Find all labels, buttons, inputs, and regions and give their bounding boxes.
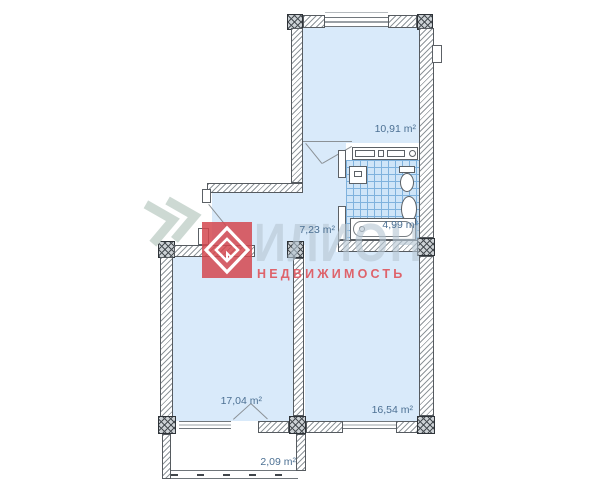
- washing-machine-door: [354, 171, 362, 177]
- window-lower-left: [179, 421, 231, 429]
- washing-machine: [349, 166, 367, 184]
- bathroom-wall-left-upper: [338, 150, 346, 178]
- wall-hallway-upper: [207, 183, 303, 193]
- balcony-glazing: [171, 470, 298, 479]
- wall-lower-right-outer: [419, 256, 434, 416]
- balcony-wall-right: [296, 434, 306, 471]
- window-lower-right: [343, 421, 396, 429]
- wall-top-seg2: [388, 15, 417, 28]
- vanity-unit-1: [355, 150, 375, 157]
- wall-bottom-right-seg2: [396, 421, 418, 433]
- balcony-area-label: 2,09 m²: [200, 456, 296, 468]
- wall-top-seg1: [303, 15, 325, 28]
- toilet-tank: [399, 166, 415, 173]
- corner-block-bottom-far-left: [158, 416, 176, 434]
- wall-bottom-left-seg: [258, 421, 289, 433]
- wall-room-divider: [293, 258, 304, 416]
- vanity-unit-2: [378, 150, 384, 157]
- window-sill-line-top: [325, 12, 388, 13]
- floor-plan-canvas: ИЛИОН НЕДВИЖИМОСТЬ 10,91 m² 7,23 m² 4,99…: [0, 0, 600, 500]
- room-lower-left-area-label: 17,04 m²: [167, 395, 262, 407]
- wall-bottom-right-seg1: [306, 421, 343, 433]
- entrance-jamb-upper: [202, 189, 211, 203]
- toilet-bowl: [400, 173, 414, 192]
- corner-block-bottom-far-right: [417, 416, 435, 434]
- vanity-unit-3: [387, 150, 405, 157]
- room-top-area-label: 10,91 m²: [316, 123, 416, 135]
- balcony-glazing-mullions: [171, 474, 298, 476]
- room-lower-right-area-label: 16,54 m²: [318, 404, 413, 416]
- vent-shaft: [432, 45, 442, 63]
- top-room-door-head: [303, 141, 352, 142]
- bathroom-vanity-counter: [352, 147, 418, 160]
- wall-lower-left-outer: [160, 257, 173, 417]
- vanity-knob-icon: [409, 150, 416, 157]
- window-top: [325, 17, 388, 27]
- corner-block-bottom-center: [289, 416, 306, 434]
- balcony-wall-left: [162, 434, 171, 479]
- watermark-tagline-text: НЕДВИЖИМОСТЬ: [257, 267, 405, 281]
- hallway-area-label: 7,23 m²: [240, 224, 335, 236]
- bathroom-area-label: 4,99 m²: [322, 219, 418, 231]
- chevrons-icon: [138, 188, 206, 252]
- wall-top-room-left: [291, 28, 303, 183]
